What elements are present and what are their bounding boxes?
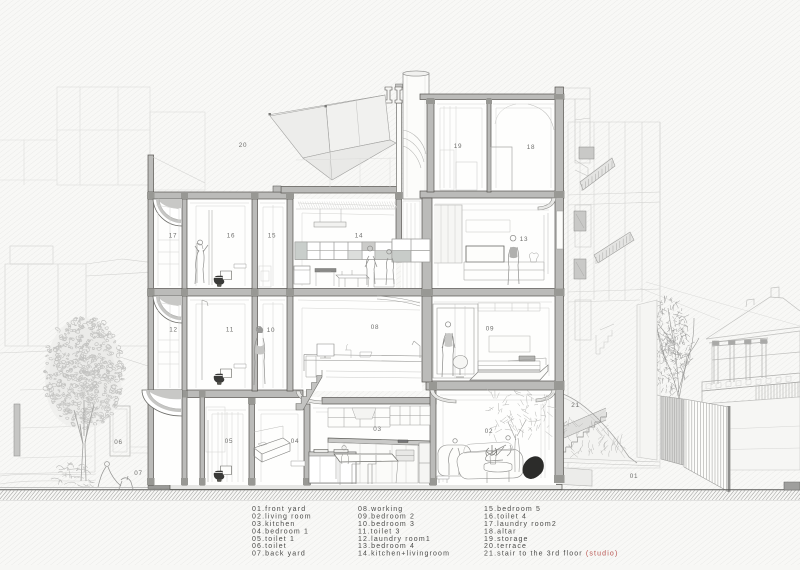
svg-text:13: 13	[520, 236, 529, 243]
svg-text:01: 01	[630, 473, 639, 480]
svg-text:09: 09	[486, 326, 495, 333]
svg-text:16.toilet 4: 16.toilet 4	[484, 514, 527, 521]
svg-text:07: 07	[134, 470, 143, 477]
svg-text:11: 11	[226, 327, 234, 334]
svg-text:08.working: 08.working	[358, 506, 403, 513]
svg-text:06: 06	[114, 439, 123, 446]
svg-text:21.stair to the 3rd floor (stu: 21.stair to the 3rd floor (studio)	[484, 551, 618, 558]
svg-text:06.toilet: 06.toilet	[252, 543, 287, 550]
svg-text:08: 08	[371, 324, 380, 331]
svg-text:04: 04	[291, 438, 300, 445]
svg-text:01.front yard: 01.front yard	[252, 506, 306, 513]
svg-text:16: 16	[227, 233, 236, 240]
svg-text:11.toilet 3: 11.toilet 3	[358, 528, 401, 535]
svg-text:10: 10	[267, 327, 276, 334]
svg-text:07.back yard: 07.back yard	[252, 551, 306, 558]
svg-text:17: 17	[169, 233, 178, 240]
svg-text:15: 15	[268, 233, 277, 240]
svg-text:17.laundry room2: 17.laundry room2	[484, 521, 557, 528]
svg-text:18: 18	[527, 144, 536, 151]
svg-text:02.living room: 02.living room	[252, 514, 312, 521]
svg-text:03: 03	[373, 426, 382, 433]
svg-text:14.kitchen+livingroom: 14.kitchen+livingroom	[358, 551, 450, 558]
svg-text:12.laundry room1: 12.laundry room1	[358, 536, 431, 543]
svg-text:05: 05	[225, 438, 234, 445]
svg-text:20: 20	[239, 142, 248, 149]
svg-text:03.kitchen: 03.kitchen	[252, 521, 295, 528]
svg-text:09.bedroom 2: 09.bedroom 2	[358, 514, 415, 521]
svg-text:14: 14	[355, 233, 364, 240]
svg-text:13.bedroom 4: 13.bedroom 4	[358, 543, 415, 550]
svg-text:18.altar: 18.altar	[484, 528, 517, 535]
svg-text:10.bedroom 3: 10.bedroom 3	[358, 521, 415, 528]
svg-text:21: 21	[571, 402, 580, 409]
svg-text:15.bedroom 5: 15.bedroom 5	[484, 506, 541, 513]
svg-text:02: 02	[485, 428, 494, 435]
svg-text:19: 19	[454, 143, 463, 150]
svg-text:05.toilet 1: 05.toilet 1	[252, 536, 295, 543]
svg-text:12: 12	[169, 327, 178, 334]
svg-text:19.storage: 19.storage	[484, 536, 529, 543]
svg-text:04.bedroom 1: 04.bedroom 1	[252, 528, 309, 535]
svg-text:20.terrace: 20.terrace	[484, 543, 527, 550]
